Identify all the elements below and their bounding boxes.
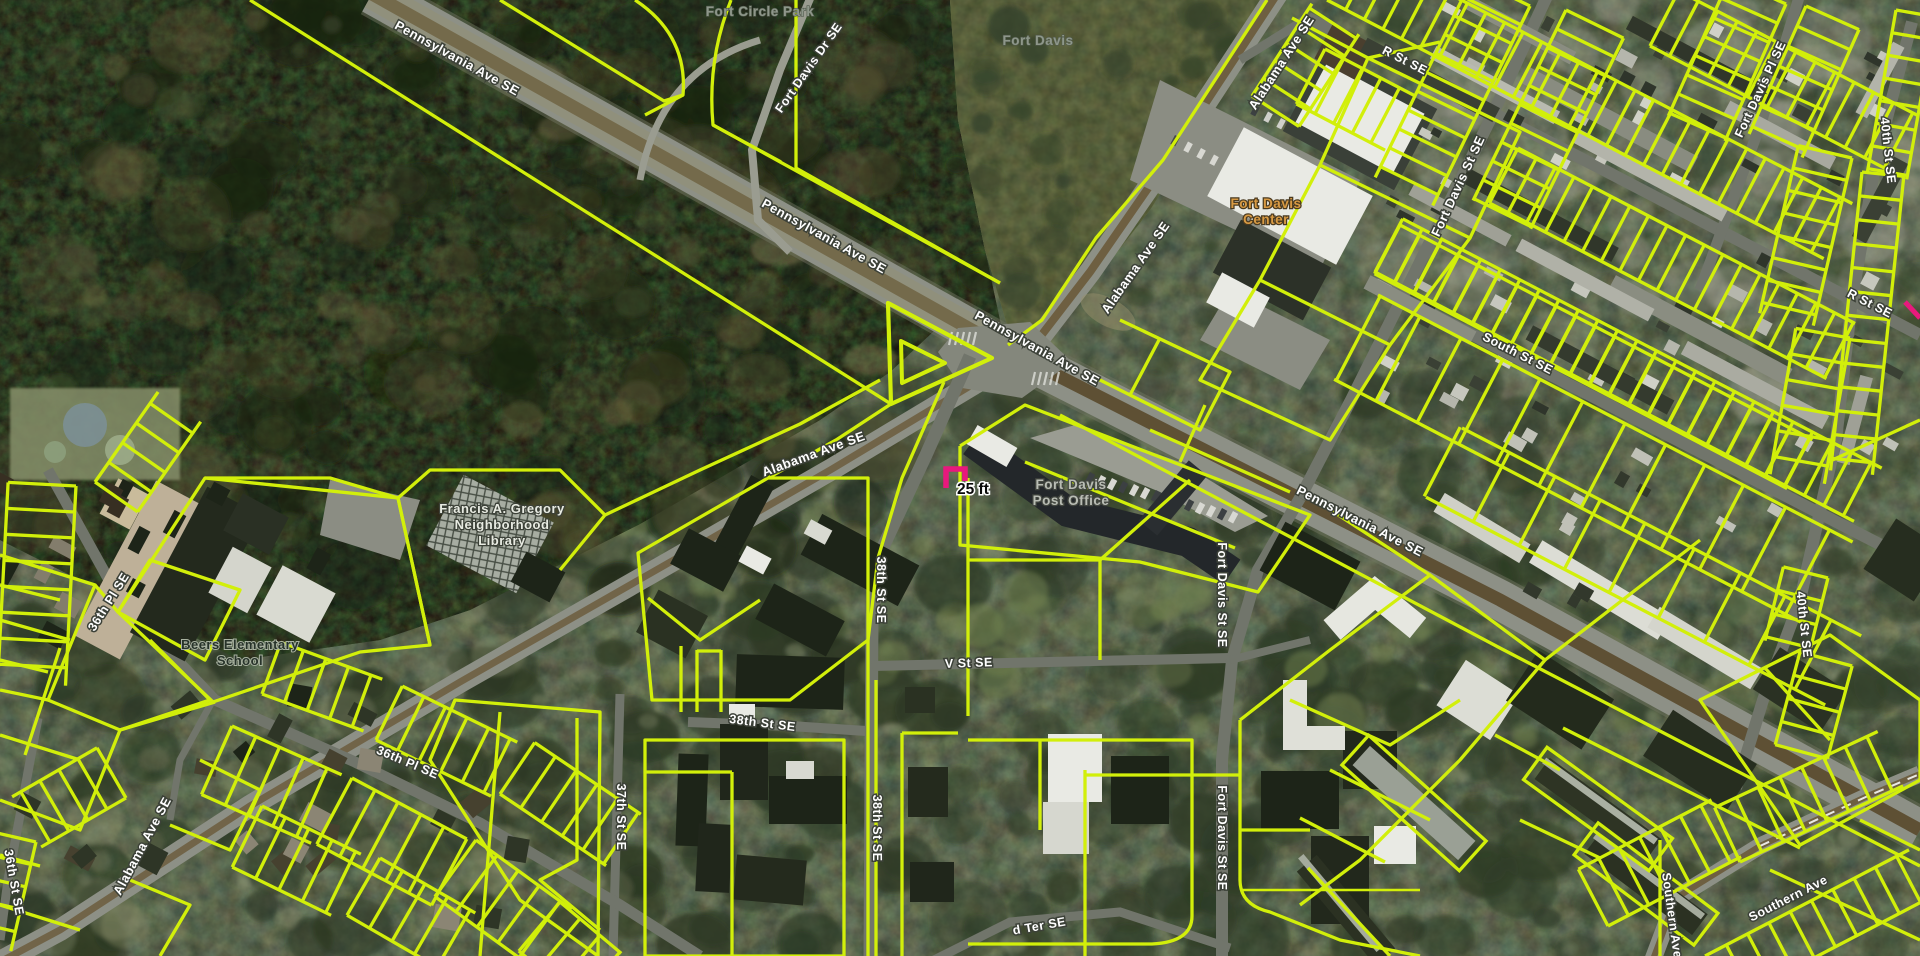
svg-text:Center: Center [1243, 212, 1289, 227]
svg-text:Post Office: Post Office [1033, 493, 1110, 508]
svg-text:Francis A. Gregory: Francis A. Gregory [439, 501, 565, 516]
svg-text:Neighborhood: Neighborhood [455, 517, 550, 532]
svg-text:25 ft: 25 ft [957, 481, 989, 498]
svg-text:Fort Davis St SE: Fort Davis St SE [1215, 785, 1229, 890]
svg-text:Library: Library [478, 533, 526, 548]
svg-text:School: School [217, 653, 263, 668]
svg-text:Beers Elementary: Beers Elementary [181, 637, 299, 652]
svg-text:Fort Davis St SE: Fort Davis St SE [1215, 542, 1229, 647]
svg-text:Fort Davis: Fort Davis [1002, 33, 1073, 48]
svg-text:Fort Circle Park: Fort Circle Park [706, 4, 815, 19]
svg-text:Fort Davis: Fort Davis [1230, 196, 1301, 211]
svg-text:38th St SE: 38th St SE [870, 795, 884, 862]
svg-text:38th St SE: 38th St SE [874, 557, 888, 624]
svg-text:V St SE: V St SE [945, 655, 993, 671]
svg-text:Fort Davis: Fort Davis [1035, 477, 1106, 492]
svg-text:37th St SE: 37th St SE [614, 784, 628, 851]
